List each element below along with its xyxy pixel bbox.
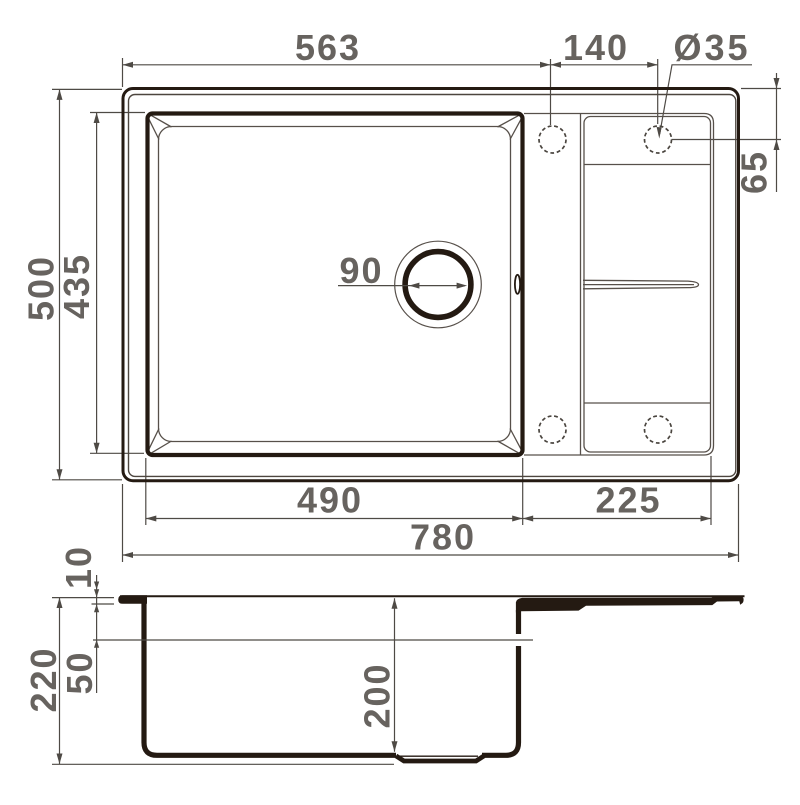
svg-text:50: 50 <box>59 650 100 694</box>
svg-text:563: 563 <box>295 27 361 68</box>
svg-text:435: 435 <box>56 253 97 319</box>
svg-text:Ø35: Ø35 <box>673 27 750 68</box>
svg-text:780: 780 <box>410 517 476 558</box>
svg-text:220: 220 <box>23 646 64 712</box>
svg-text:490: 490 <box>297 480 363 521</box>
svg-text:10: 10 <box>58 545 99 589</box>
svg-text:140: 140 <box>563 27 629 68</box>
svg-text:225: 225 <box>595 480 661 521</box>
svg-text:90: 90 <box>339 250 383 291</box>
svg-text:200: 200 <box>357 662 398 728</box>
